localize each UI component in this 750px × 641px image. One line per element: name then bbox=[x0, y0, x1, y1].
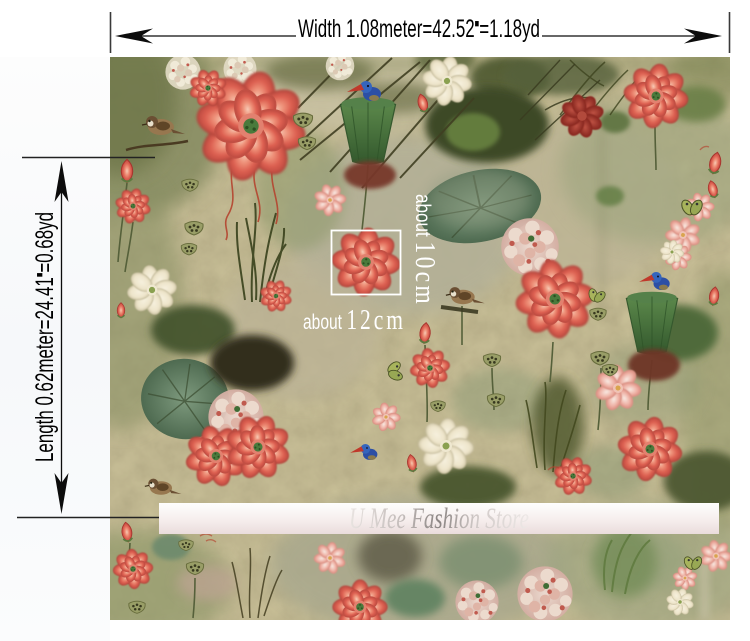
svg-text:Width 1.08meter=42.52■=1.18yd: Width 1.08meter=42.52■=1.18yd bbox=[298, 15, 540, 43]
svg-text:Length 0.62meter=24.41■=0.68yd: Length 0.62meter=24.41■=0.68yd bbox=[31, 212, 59, 462]
svg-text:U Mee Fashion Store: U Mee Fashion Store bbox=[349, 502, 529, 535]
